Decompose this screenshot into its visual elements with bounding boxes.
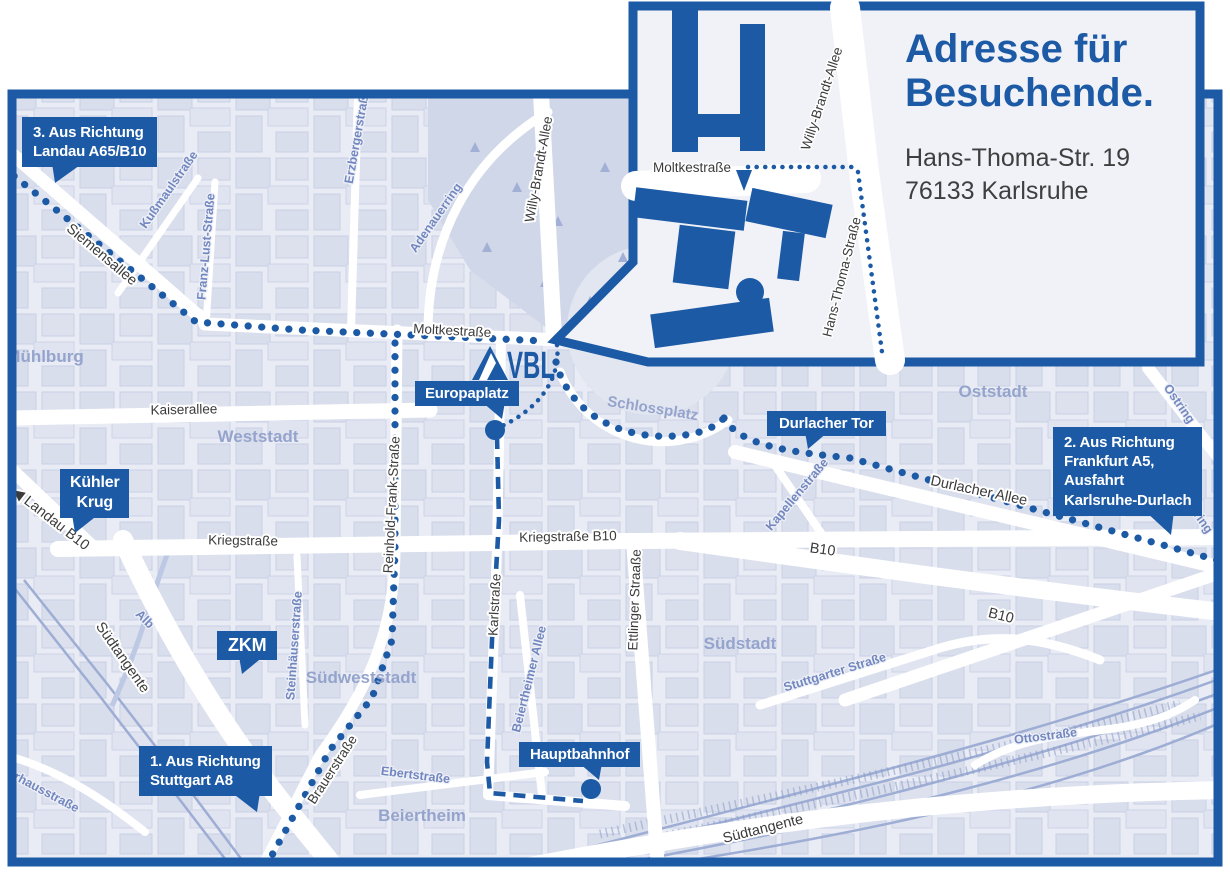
callout-stuttgart-line1: 1. Aus Richtung	[150, 752, 261, 771]
callout-kuehler-krug-line2: Krug	[70, 493, 119, 513]
callout-frankfurt: 2. Aus Richtung Frankfurt A5, Ausfahrt K…	[1053, 427, 1202, 516]
callout-europaplatz: Europaplatz	[415, 381, 519, 406]
inset-address-line1: Hans-Thoma-Str. 19	[905, 144, 1130, 172]
callout-tail	[231, 792, 260, 815]
inset-label-moltkestrasse: Moltkestraße	[653, 160, 731, 175]
inset-title-line1: Adresse für	[905, 27, 1127, 71]
vbl-directions-map: Kußmaulstraße Franz-Lust-Straße Erzberge…	[0, 0, 1230, 874]
district-oststadt: Oststadt	[959, 382, 1028, 401]
callout-europaplatz-label: Europaplatz	[425, 384, 509, 403]
district-weststadt: Weststadt	[218, 427, 299, 446]
callout-tail	[239, 656, 264, 677]
street-label-kriegstrasse: Kriegstraße	[208, 532, 278, 548]
callout-frankfurt-line4: Karlsruhe-Durlach	[1064, 491, 1191, 510]
callout-frankfurt-line3: Ausfahrt	[1064, 471, 1191, 490]
callout-hauptbahnhof: Hauptbahnhof	[519, 742, 640, 767]
callout-kuehler-krug-line1: Kühler	[70, 473, 119, 493]
callout-stuttgart-line2: Stuttgart A8	[150, 771, 261, 790]
callout-landau-line1: 3. Aus Richtung	[33, 123, 146, 142]
inset-title-line2: Besuchende.	[905, 71, 1154, 115]
callout-kuehler-krug: Kühler Krug	[60, 469, 129, 518]
street-label-kriegstrasse-b10: Kriegstraße B10	[519, 528, 617, 545]
callout-tail	[72, 514, 99, 536]
district-suedstadt: Südstadt	[704, 634, 777, 653]
callout-frankfurt-line1: 2. Aus Richtung	[1064, 433, 1191, 452]
callout-zkm-label: ZKM	[228, 634, 266, 657]
callout-tail	[52, 163, 83, 186]
callout-stuttgart: 1. Aus Richtung Stuttgart A8	[139, 746, 272, 796]
callout-durlacher-tor-label: Durlacher Tor	[779, 414, 874, 433]
callout-tail	[579, 763, 602, 783]
callout-landau-line2: Landau A65/B10	[33, 142, 146, 161]
district-suedweststadt: Südweststadt	[306, 668, 417, 687]
inset-panel: Moltkestraße Willy-Brandt-Allee Hans-Tho…	[556, 6, 1200, 362]
callout-zkm: ZKM	[217, 631, 277, 660]
callout-durlacher-tor: Durlacher Tor	[767, 411, 886, 436]
inset-address-line2: 76133 Karlsruhe	[905, 177, 1088, 205]
callout-hauptbahnhof-label: Hauptbahnhof	[530, 745, 629, 764]
callout-tail	[1145, 511, 1174, 538]
callout-landau: 3. Aus Richtung Landau A65/B10	[22, 117, 157, 167]
callout-frankfurt-line2: Frankfurt A5,	[1064, 452, 1191, 471]
district-beiertheim: Beiertheim	[378, 806, 466, 825]
street-label-kaiserallee: Kaiserallee	[150, 401, 217, 417]
europaplatz-stop-marker	[485, 420, 505, 440]
callout-tail	[482, 402, 505, 422]
district-muehlburg: Mühlburg	[6, 347, 83, 366]
callout-tail	[805, 432, 828, 452]
